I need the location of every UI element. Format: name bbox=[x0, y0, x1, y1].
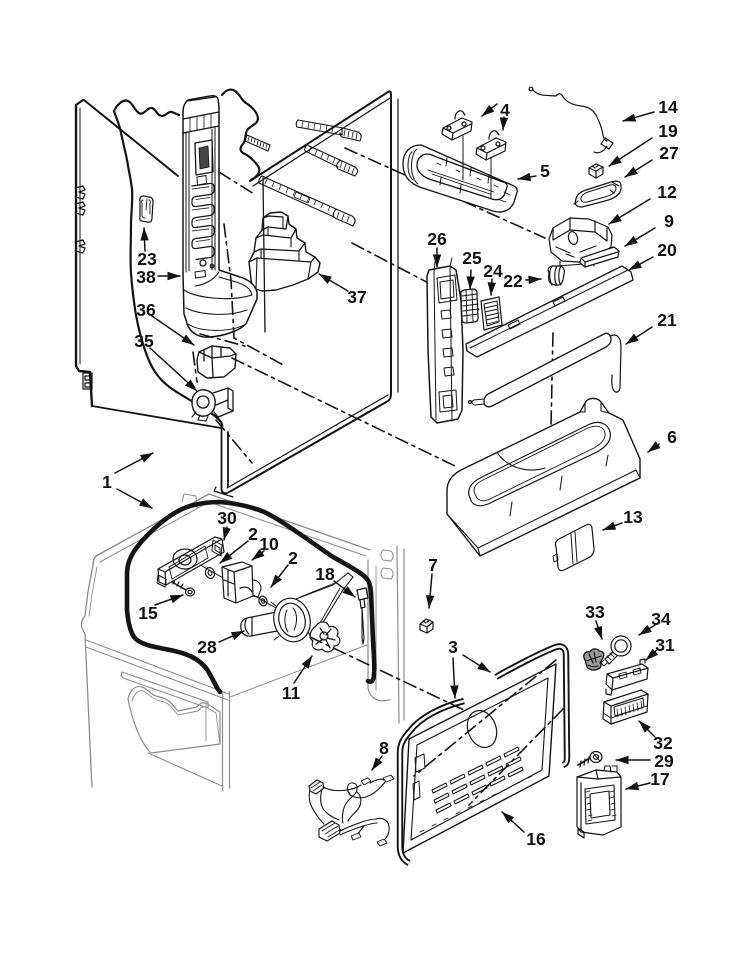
svg-text:28: 28 bbox=[197, 637, 217, 657]
svg-text:5: 5 bbox=[540, 161, 550, 181]
svg-text:29: 29 bbox=[654, 751, 674, 771]
svg-text:3: 3 bbox=[448, 637, 458, 657]
svg-text:7: 7 bbox=[428, 555, 438, 575]
svg-text:16: 16 bbox=[526, 829, 546, 849]
svg-text:33: 33 bbox=[585, 602, 605, 622]
svg-text:11: 11 bbox=[282, 683, 301, 703]
svg-text:32: 32 bbox=[653, 733, 673, 753]
svg-text:2: 2 bbox=[288, 548, 298, 568]
svg-text:30: 30 bbox=[217, 508, 237, 528]
svg-text:37: 37 bbox=[347, 287, 366, 307]
svg-text:31: 31 bbox=[655, 635, 675, 655]
svg-text:1: 1 bbox=[102, 472, 112, 492]
svg-text:38: 38 bbox=[136, 267, 156, 287]
svg-text:34: 34 bbox=[651, 609, 671, 629]
svg-text:17: 17 bbox=[650, 769, 669, 789]
svg-text:4: 4 bbox=[500, 100, 510, 120]
svg-text:18: 18 bbox=[315, 564, 335, 584]
svg-text:6: 6 bbox=[667, 427, 677, 447]
svg-text:20: 20 bbox=[657, 240, 677, 260]
svg-text:27: 27 bbox=[659, 143, 678, 163]
svg-text:22: 22 bbox=[503, 271, 523, 291]
svg-text:23: 23 bbox=[137, 249, 157, 269]
svg-text:15: 15 bbox=[138, 603, 158, 623]
svg-text:8: 8 bbox=[379, 738, 389, 758]
svg-text:14: 14 bbox=[658, 97, 678, 117]
svg-text:26: 26 bbox=[427, 229, 447, 249]
svg-text:24: 24 bbox=[483, 261, 503, 281]
svg-text:19: 19 bbox=[658, 121, 678, 141]
svg-text:13: 13 bbox=[623, 507, 643, 527]
svg-text:10: 10 bbox=[259, 534, 279, 554]
svg-text:2: 2 bbox=[248, 524, 258, 544]
svg-text:21: 21 bbox=[657, 310, 677, 330]
svg-text:9: 9 bbox=[664, 211, 674, 231]
svg-text:35: 35 bbox=[134, 331, 154, 351]
svg-text:12: 12 bbox=[657, 182, 677, 202]
svg-text:25: 25 bbox=[462, 248, 482, 268]
svg-text:36: 36 bbox=[136, 300, 156, 320]
